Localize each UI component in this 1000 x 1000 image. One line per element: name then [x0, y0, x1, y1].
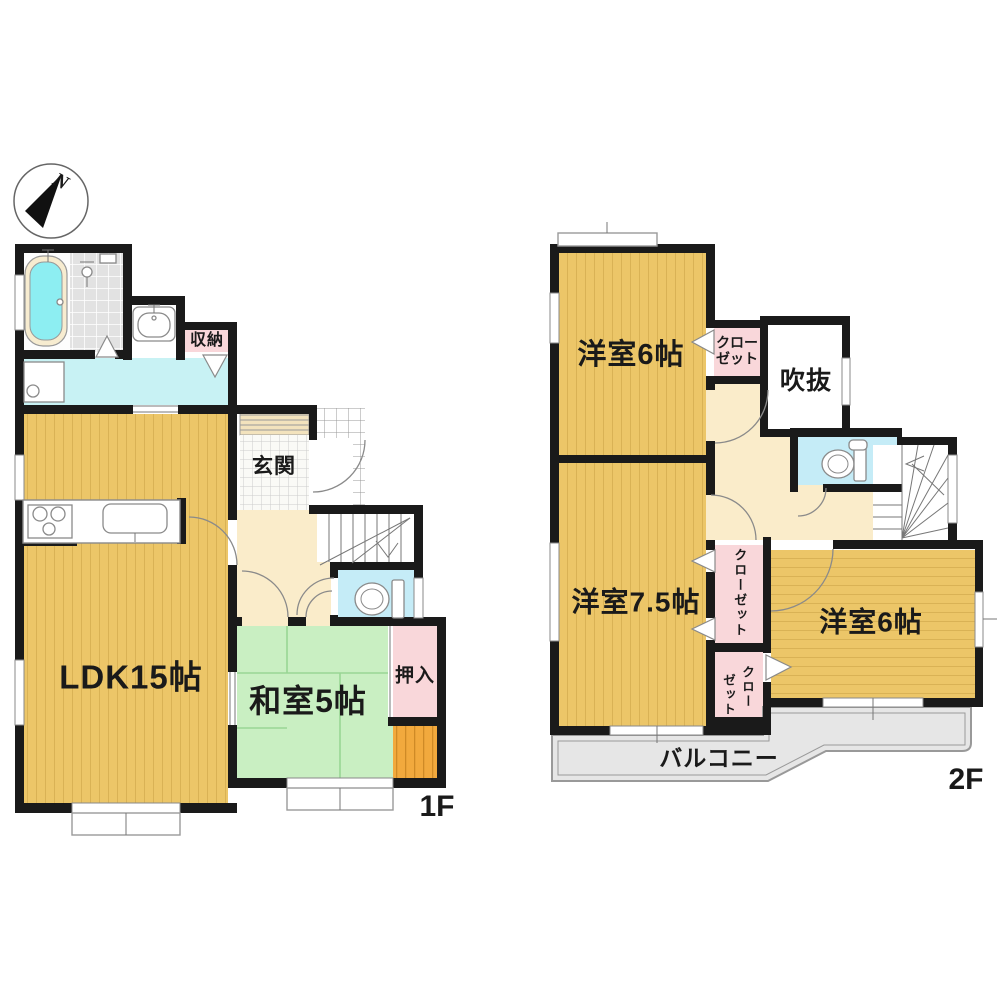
room-label-ldk: LDK15帖	[59, 660, 203, 697]
toilet-1f-icon	[355, 580, 404, 618]
room-label-closet-south-col2: ゼット	[721, 673, 735, 717]
floor-plan-drawing	[0, 0, 1000, 1000]
room-label-closet-west: クローゼット	[732, 548, 747, 638]
washbasin-icon	[133, 305, 175, 341]
floor1-label: 1F	[419, 790, 454, 824]
floor-plan-canvas: N 収納 玄関 LDK15帖 和室5帖 押入 1F 洋室6帖 クロー ゼット 吹…	[0, 0, 1000, 1000]
room-label-balcony: バルコニー	[659, 746, 779, 772]
floor2-label: 2F	[948, 763, 983, 797]
floor2-plan	[550, 222, 997, 781]
room-label-closet-north: クロー ゼット	[716, 335, 758, 366]
room-label-oshiire: 押入	[395, 665, 435, 686]
closet-north-line2: ゼット	[716, 351, 758, 367]
room-label-closet-south-col1: クロー	[740, 665, 754, 709]
washer-pan-icon	[24, 362, 64, 402]
closet-north-line1: クロー	[716, 335, 758, 351]
room-label-bedroom-north: 洋室6帖	[577, 339, 684, 371]
kitchen-counter-icon	[23, 500, 180, 543]
room-label-atrium: 吹抜	[780, 367, 832, 395]
room-label-tatami: 和室5帖	[249, 684, 367, 720]
room-label-storage: 収納	[190, 332, 224, 350]
bathtub-icon	[25, 250, 67, 346]
floor1-plan	[15, 244, 446, 835]
room-label-bedroom-west: 洋室7.5帖	[572, 586, 701, 617]
compass-icon	[14, 164, 88, 238]
room-label-bedroom-east: 洋室6帖	[819, 606, 923, 637]
room-label-entrance: 玄関	[252, 455, 296, 479]
